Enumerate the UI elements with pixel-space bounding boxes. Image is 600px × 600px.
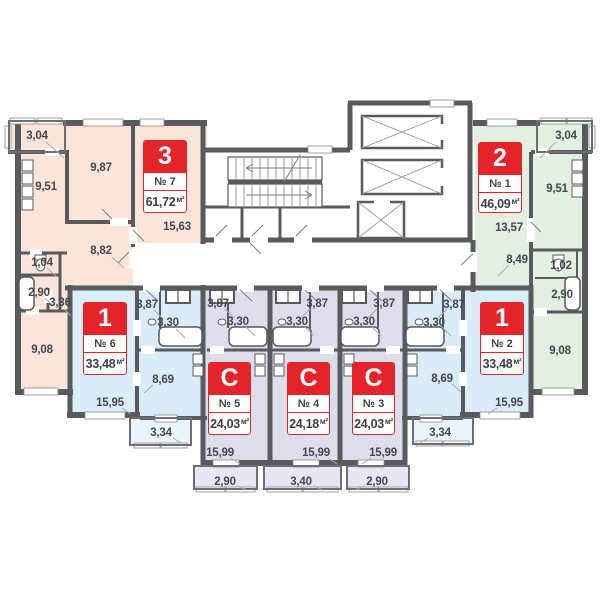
apartment-type: 2 [479, 143, 521, 174]
room-area-label: 8,49 [506, 254, 528, 266]
apartment-number: № 7 [144, 172, 186, 190]
room-area-label: 15,95 [495, 397, 523, 409]
room-area-label: 3,87 [306, 298, 328, 310]
room-area-label: 9,87 [90, 162, 112, 174]
area-unit: м² [511, 197, 519, 206]
apartment-number: № 1 [479, 174, 521, 192]
room-area-label: 15,99 [302, 447, 330, 459]
apartment-type: 1 [84, 303, 126, 334]
room-area-label: 3,30 [157, 317, 179, 329]
room-area-label: 3,30 [227, 316, 249, 328]
floor-plan-canvas [0, 0, 600, 600]
room-area-label: 3,87 [207, 298, 229, 310]
room-area-label: 9,08 [31, 344, 53, 356]
room-area-label: 8,82 [90, 245, 112, 257]
area-value: 24,03 [210, 417, 240, 431]
room-area-label: 9,08 [549, 345, 571, 357]
area-value: 33,48 [86, 357, 116, 371]
apartment-number: № 5 [209, 394, 250, 412]
apartment-badge-3[interactable]: C № 3 24,03м² [352, 362, 395, 435]
room-area-label: 3,30 [423, 317, 445, 329]
apartment-badge-7[interactable]: 3 № 7 61,72м² [143, 140, 187, 213]
room-area-label: 2,90 [366, 476, 388, 488]
apartment-type: 1 [481, 303, 523, 334]
area-unit: м² [241, 417, 249, 426]
room-area-label: 15,99 [369, 447, 397, 459]
apartment-area: 33,48м² [481, 352, 523, 374]
room-area-label: 1,02 [550, 260, 572, 272]
area-value: 24,18 [289, 417, 319, 431]
apartment-type: C [209, 363, 250, 394]
room-area-label: 8,69 [431, 373, 453, 385]
area-unit: м² [513, 357, 521, 366]
apartment-area: 46,09м² [479, 192, 521, 213]
room-area-label: 13,57 [495, 222, 523, 234]
apartment-badge-1[interactable]: 2 № 1 46,09м² [478, 142, 522, 213]
apartment-area: 61,72м² [144, 190, 186, 212]
floor-plan: 3,04 9,51 9,87 15,63 8,82 1,04 2,90 3,36… [0, 0, 600, 600]
apartment-area: 33,48м² [84, 352, 126, 374]
room-area-label: 9,51 [546, 183, 568, 195]
apartment-number: № 4 [288, 394, 329, 412]
apartment-number: № 3 [353, 394, 394, 412]
staircase [228, 155, 322, 207]
apartment-number: № 6 [84, 334, 126, 352]
room-area-label: 8,69 [152, 374, 174, 386]
room-area-label: 3,34 [429, 427, 451, 439]
room-area-label: 15,99 [206, 447, 234, 459]
apartment-badge-6[interactable]: 1 № 6 33,48м² [83, 302, 127, 375]
room-area-label: 3,04 [26, 130, 48, 142]
room-area-label: 3,40 [290, 476, 312, 488]
room-area-label: 3,30 [286, 316, 308, 328]
area-unit: м² [116, 357, 124, 366]
area-value: 61,72 [146, 195, 176, 209]
room-area-label: 2,90 [551, 289, 573, 301]
room-area-label: 1,04 [31, 257, 53, 269]
area-unit: м² [320, 417, 328, 426]
apartment-area: 24,03м² [209, 412, 250, 434]
room-area-label: 3,36 [49, 297, 71, 309]
room-area-label: 3,87 [373, 298, 395, 310]
room-area-label: 3,34 [150, 427, 172, 439]
apartment-badge-5[interactable]: C № 5 24,03м² [208, 362, 251, 435]
apartment-type: C [288, 363, 329, 394]
apartment-area: 24,18м² [288, 412, 329, 434]
room-area-label: 15,63 [163, 221, 191, 233]
room-area-label: 2,90 [28, 287, 50, 299]
apartment-badge-4[interactable]: C № 4 24,18м² [287, 362, 330, 435]
apartment-type: 3 [144, 141, 186, 172]
apartment-badge-2[interactable]: 1 № 2 33,48м² [480, 302, 524, 375]
area-value: 46,09 [481, 197, 511, 211]
room-area-label: 2,90 [214, 476, 236, 488]
area-value: 33,48 [483, 357, 513, 371]
room-area-label: 15,95 [96, 397, 124, 409]
room-area-label: 3,87 [443, 299, 465, 311]
room-area-label: 3,87 [136, 299, 158, 311]
area-unit: м² [176, 195, 184, 204]
apartment-area: 24,03м² [353, 412, 394, 434]
area-value: 24,03 [354, 417, 384, 431]
room-area-label: 9,51 [35, 181, 57, 193]
apartment-number: № 2 [481, 334, 523, 352]
area-unit: м² [385, 417, 393, 426]
apartment-type: C [353, 363, 394, 394]
room-area-label: 3,30 [353, 316, 375, 328]
room-area-label: 3,04 [555, 130, 577, 142]
